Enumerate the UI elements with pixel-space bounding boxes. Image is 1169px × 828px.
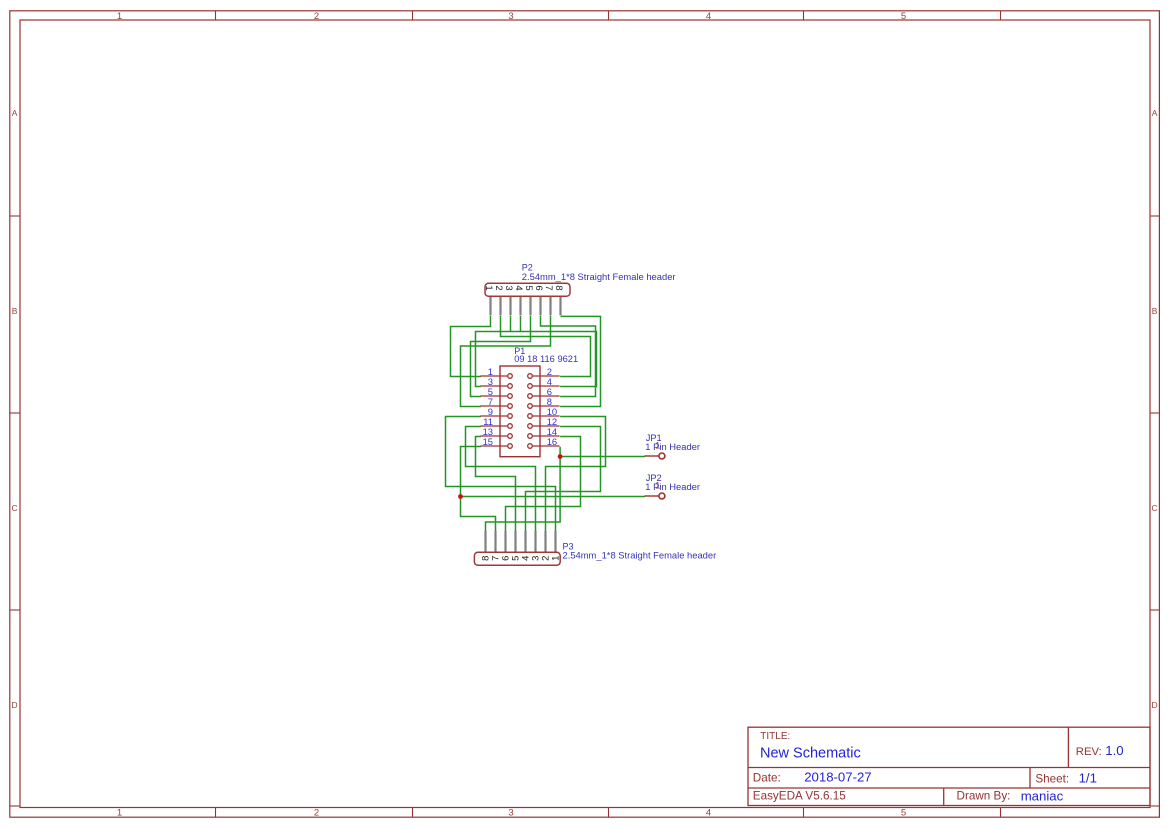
svg-text:2: 2	[493, 285, 504, 290]
svg-text:1 Pin Header: 1 Pin Header	[645, 481, 700, 492]
svg-text:8: 8	[553, 285, 564, 290]
svg-text:1: 1	[117, 11, 122, 22]
svg-text:4: 4	[513, 285, 524, 290]
svg-text:3: 3	[503, 285, 514, 290]
svg-text:2: 2	[314, 808, 319, 819]
svg-text:A: A	[12, 108, 18, 118]
svg-text:New Schematic: New Schematic	[760, 746, 861, 762]
svg-text:C: C	[1152, 503, 1158, 513]
svg-text:5: 5	[901, 11, 906, 22]
svg-text:TITLE:: TITLE:	[760, 731, 790, 742]
svg-text:3: 3	[508, 808, 513, 819]
svg-text:C: C	[12, 503, 18, 513]
svg-text:4: 4	[706, 11, 711, 22]
svg-text:A: A	[1152, 108, 1158, 118]
svg-text:2.54mm_1*8 Straight Female hea: 2.54mm_1*8 Straight Female header	[522, 271, 676, 282]
svg-text:D: D	[1152, 700, 1158, 710]
svg-text:4: 4	[706, 808, 711, 819]
svg-text:1: 1	[551, 556, 562, 561]
svg-text:5: 5	[901, 808, 906, 819]
svg-text:D: D	[12, 700, 18, 710]
svg-text:09 18 116 9621: 09 18 116 9621	[514, 354, 578, 364]
svg-text:6: 6	[533, 285, 544, 290]
svg-text:B: B	[1152, 306, 1158, 316]
svg-text:5: 5	[523, 285, 534, 290]
svg-text:B: B	[12, 306, 18, 316]
svg-text:Sheet:: Sheet:	[1035, 773, 1069, 786]
svg-text:1 Pin Header: 1 Pin Header	[645, 441, 700, 452]
svg-text:EasyEDA V5.6.15: EasyEDA V5.6.15	[753, 789, 846, 802]
svg-text:1/1: 1/1	[1079, 771, 1097, 786]
svg-text:7: 7	[543, 285, 554, 290]
svg-text:2018-07-27: 2018-07-27	[804, 770, 871, 785]
svg-text:REV:: REV:	[1076, 746, 1102, 758]
svg-text:Date:: Date:	[753, 772, 781, 785]
svg-text:16: 16	[547, 436, 557, 447]
svg-text:2: 2	[314, 11, 319, 22]
svg-text:3: 3	[508, 11, 513, 22]
svg-text:15: 15	[483, 436, 493, 447]
svg-text:Drawn By:: Drawn By:	[957, 789, 1011, 802]
svg-text:maniac: maniac	[1021, 788, 1064, 803]
svg-text:2.54mm_1*8 Straight Female hea: 2.54mm_1*8 Straight Female header	[563, 550, 717, 561]
svg-text:1: 1	[117, 808, 122, 819]
svg-text:1.0: 1.0	[1105, 743, 1123, 758]
svg-text:1: 1	[483, 285, 494, 290]
